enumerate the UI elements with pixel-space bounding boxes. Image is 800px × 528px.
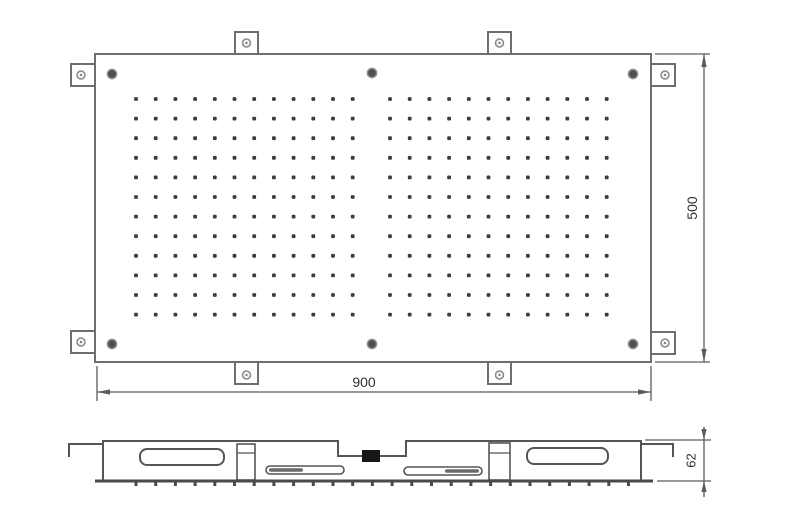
nozzle-dot (506, 234, 510, 238)
nozzle-dot (193, 117, 197, 121)
nozzle-dot (233, 254, 237, 258)
nozzle-dot (565, 215, 569, 219)
nozzle-dot (487, 97, 491, 101)
nozzle-dot (408, 156, 412, 160)
nozzle-dot (467, 195, 471, 199)
nozzle-dot (546, 254, 550, 258)
nozzle-dot (408, 117, 412, 121)
nozzle-dot (388, 313, 392, 317)
tab-screw-hole-center (80, 74, 82, 76)
nozzle-dot (408, 234, 412, 238)
nozzle-dot (526, 156, 530, 160)
corner-screw (628, 69, 637, 78)
nozzle-dot (252, 313, 256, 317)
nozzle-dot (447, 195, 451, 199)
nozzle-dot (193, 254, 197, 258)
nozzle-dot (272, 234, 276, 238)
nozzle-dot (154, 293, 158, 297)
nozzle-dot (565, 195, 569, 199)
nozzle-dot (546, 234, 550, 238)
nozzle-dot (565, 97, 569, 101)
thickness-dimension-label: 62 (684, 453, 699, 467)
nozzle-dot (331, 195, 335, 199)
nozzle-dot (331, 254, 335, 258)
nozzle-dot (174, 234, 178, 238)
arrowhead-left (97, 389, 110, 394)
tab-screw-hole-center (664, 74, 666, 76)
nozzle-dot (174, 176, 178, 180)
nozzle-dot (331, 274, 335, 278)
nozzle-dot (408, 274, 412, 278)
nozzle-dot (292, 176, 296, 180)
arrowhead-right (638, 389, 651, 394)
nozzle-dot (272, 117, 276, 121)
nozzle-dot (311, 97, 315, 101)
nozzle-dot (546, 274, 550, 278)
nozzle-dot (526, 313, 530, 317)
nozzle-dot (154, 313, 158, 317)
nozzle-dot (292, 136, 296, 140)
nozzle-dot (565, 156, 569, 160)
nozzle-dot (546, 195, 550, 199)
nozzle-dot (565, 176, 569, 180)
arrowhead-top (701, 429, 706, 440)
nozzle-dot (428, 313, 432, 317)
nozzle-dot (506, 313, 510, 317)
nozzle-dot (351, 313, 355, 317)
nozzle-dot (408, 136, 412, 140)
nozzle-dot (565, 274, 569, 278)
nozzle-dot (388, 117, 392, 121)
nozzle-dot (408, 195, 412, 199)
nozzle-dot (467, 215, 471, 219)
right-support (489, 443, 510, 480)
nozzle-dot (213, 313, 217, 317)
nozzle-dot (585, 293, 589, 297)
nozzle-dot (134, 234, 138, 238)
nozzle-dot (546, 176, 550, 180)
nozzle-dot (252, 117, 256, 121)
nozzle-dot (134, 254, 138, 258)
nozzle-dot (388, 293, 392, 297)
nozzle-dot (546, 117, 550, 121)
nozzle-dot (134, 156, 138, 160)
nozzle-dot (408, 254, 412, 258)
nozzle-dot (487, 195, 491, 199)
nozzle-dot (292, 215, 296, 219)
nozzle-dot (134, 195, 138, 199)
nozzle-dot (134, 313, 138, 317)
nozzle-dot (272, 176, 276, 180)
nozzle-dot (193, 274, 197, 278)
nozzle-dot (447, 254, 451, 258)
nozzle-dot (565, 234, 569, 238)
nozzle-dot (193, 97, 197, 101)
nozzle-dot (565, 293, 569, 297)
nozzle-dot (311, 156, 315, 160)
nozzle-dot (447, 313, 451, 317)
nozzle-dot (467, 234, 471, 238)
nozzle-dot (565, 117, 569, 121)
nozzle-dot (546, 156, 550, 160)
tab-screw-hole-center (80, 341, 82, 343)
nozzle-dot (193, 136, 197, 140)
nozzle-dot (565, 136, 569, 140)
nozzle-dot (605, 176, 609, 180)
nozzle-dot (311, 234, 315, 238)
nozzle-dot (213, 97, 217, 101)
nozzle-dot (213, 176, 217, 180)
nozzle-dot (311, 195, 315, 199)
nozzle-dot (447, 293, 451, 297)
nozzle-dot (506, 274, 510, 278)
nozzle-dot (154, 156, 158, 160)
nozzle-dot (292, 195, 296, 199)
nozzle-dot (331, 293, 335, 297)
nozzle-dot (428, 136, 432, 140)
nozzle-dot (506, 254, 510, 258)
nozzle-dot (272, 136, 276, 140)
corner-screw (628, 339, 637, 348)
nozzle-dot (487, 176, 491, 180)
nozzle-dot (605, 97, 609, 101)
nozzle-dot (526, 195, 530, 199)
nozzle-dot (447, 156, 451, 160)
nozzle-dot (585, 117, 589, 121)
tab-screw-hole-center (245, 42, 247, 44)
nozzle-dot (526, 215, 530, 219)
nozzle-dot (351, 274, 355, 278)
nozzle-dot (134, 97, 138, 101)
nozzle-dot (331, 117, 335, 121)
nozzle-dot (526, 117, 530, 121)
nozzle-dot (331, 313, 335, 317)
nozzle-dot (252, 195, 256, 199)
nozzle-dot (174, 293, 178, 297)
nozzle-dot (331, 97, 335, 101)
nozzle-dot (174, 215, 178, 219)
nozzle-dot (331, 215, 335, 219)
nozzle-dot (585, 313, 589, 317)
nozzle-dot (428, 293, 432, 297)
technical-drawing-canvas: 900 500 (0, 0, 800, 528)
nozzle-dot (565, 313, 569, 317)
nozzle-dot (506, 293, 510, 297)
nozzle-dot (428, 215, 432, 219)
nozzle-dot (154, 215, 158, 219)
nozzle-dot (447, 215, 451, 219)
nozzle-dot (506, 136, 510, 140)
nozzle-dot (272, 293, 276, 297)
nozzle-dot (193, 313, 197, 317)
left-support (237, 444, 255, 480)
nozzle-dot (233, 117, 237, 121)
nozzle-dot (605, 274, 609, 278)
nozzle-dot (351, 156, 355, 160)
left-mounting-hook (69, 444, 103, 457)
nozzle-dot (585, 215, 589, 219)
nozzle-dot (272, 156, 276, 160)
nozzle-dot (252, 254, 256, 258)
height-dimension: 500 (655, 54, 710, 362)
nozzle-dot (447, 274, 451, 278)
nozzle-dot (174, 313, 178, 317)
nozzle-dot (351, 97, 355, 101)
nozzle-dot (272, 254, 276, 258)
nozzle-dot (154, 274, 158, 278)
nozzle-dot (605, 234, 609, 238)
nozzle-dot (154, 176, 158, 180)
nozzle-dot (585, 234, 589, 238)
nozzle-dot (428, 97, 432, 101)
nozzle-dot (134, 117, 138, 121)
nozzle-dot (154, 254, 158, 258)
nozzle-dot (134, 176, 138, 180)
nozzle-dot (506, 97, 510, 101)
nozzle-dot (292, 254, 296, 258)
arrowhead-top (701, 54, 706, 67)
nozzle-dot (193, 176, 197, 180)
height-dimension-label: 500 (684, 196, 700, 220)
tab-screw-hole-center (498, 374, 500, 376)
nozzle-dot (546, 215, 550, 219)
nozzle-dot (447, 97, 451, 101)
nozzle-dot (467, 156, 471, 160)
nozzle-dot (252, 176, 256, 180)
nozzle-dot (526, 254, 530, 258)
nozzle-dot (292, 293, 296, 297)
nozzle-dot (292, 313, 296, 317)
nozzle-dot (292, 234, 296, 238)
nozzle-dot (213, 215, 217, 219)
nozzle-dot (605, 313, 609, 317)
top-view (71, 32, 675, 384)
width-dimension-label: 900 (352, 374, 376, 390)
nozzle-dot (467, 136, 471, 140)
nozzle-dot (331, 136, 335, 140)
nozzle-dot (487, 313, 491, 317)
mounting-tab-bottom (235, 362, 258, 384)
nozzle-dot (447, 136, 451, 140)
nozzle-dot (174, 274, 178, 278)
nozzle-dot (605, 215, 609, 219)
nozzle-dot (233, 215, 237, 219)
nozzle-dot (428, 117, 432, 121)
nozzle-dot (585, 254, 589, 258)
nozzle-dot (605, 293, 609, 297)
nozzle-dot (311, 176, 315, 180)
nozzle-dot (134, 215, 138, 219)
nozzle-dot (605, 195, 609, 199)
arrowhead-bottom (701, 349, 706, 362)
nozzle-dot (467, 176, 471, 180)
nozzle-dot (311, 313, 315, 317)
nozzle-dot (193, 215, 197, 219)
nozzle-dot (193, 293, 197, 297)
nozzle-dot (506, 176, 510, 180)
nozzle-dot (408, 215, 412, 219)
nozzle-dot (213, 274, 217, 278)
thickness-dimension: 62 (645, 427, 711, 497)
nozzle-dot (388, 195, 392, 199)
nozzle-dot (252, 293, 256, 297)
nozzle-dot (351, 234, 355, 238)
nozzle-dot (252, 136, 256, 140)
nozzle-dot (233, 195, 237, 199)
nozzle-dot (351, 136, 355, 140)
nozzle-dot (585, 195, 589, 199)
nozzle-dot (546, 136, 550, 140)
nozzle-dot (487, 156, 491, 160)
nozzle-dot (174, 97, 178, 101)
nozzle-dot (585, 176, 589, 180)
nozzle-dot (467, 274, 471, 278)
nozzle-dot (174, 136, 178, 140)
nozzle-dot (331, 234, 335, 238)
corner-screw (367, 339, 376, 348)
nozzle-dot (487, 136, 491, 140)
nozzle-dot (506, 195, 510, 199)
nozzle-dot (213, 156, 217, 160)
nozzle-dot (272, 313, 276, 317)
nozzle-dot (447, 234, 451, 238)
nozzle-dot (292, 274, 296, 278)
nozzle-dot (233, 313, 237, 317)
nozzle-dot (193, 195, 197, 199)
nozzle-dot (213, 195, 217, 199)
nozzle-dot (487, 293, 491, 297)
nozzle-dot (213, 293, 217, 297)
nozzle-dot (487, 254, 491, 258)
nozzle-dot (428, 156, 432, 160)
nozzle-dot (272, 195, 276, 199)
nozzle-dot (526, 97, 530, 101)
nozzle-dot (605, 156, 609, 160)
nozzle-dot (154, 234, 158, 238)
nozzle-dot (311, 136, 315, 140)
shower-head-drawing: 900 500 (0, 0, 800, 528)
nozzle-dot (351, 215, 355, 219)
nozzle-dot (252, 234, 256, 238)
nozzle-dot (233, 136, 237, 140)
nozzle-dot (351, 195, 355, 199)
nozzle-dot (154, 195, 158, 199)
nozzle-dot (351, 254, 355, 258)
mounting-tab-top (488, 32, 511, 54)
nozzle-dot (565, 254, 569, 258)
nozzle-dot (351, 117, 355, 121)
nozzle-dot (233, 176, 237, 180)
nozzle-dot (506, 156, 510, 160)
nozzle-dot (585, 156, 589, 160)
nozzle-dot (311, 274, 315, 278)
nozzle-dot (154, 97, 158, 101)
nozzle-dot (174, 117, 178, 121)
water-inlet (362, 450, 380, 462)
nozzle-dot (506, 215, 510, 219)
nozzle-dot (388, 176, 392, 180)
nozzle-dot (233, 97, 237, 101)
nozzle-dot (585, 97, 589, 101)
nozzle-dot (292, 117, 296, 121)
nozzle-dot (467, 117, 471, 121)
nozzle-dot (526, 293, 530, 297)
nozzle-dot (252, 215, 256, 219)
mounting-tab-right (651, 332, 675, 354)
nozzle-dot (292, 97, 296, 101)
nozzle-dot (506, 117, 510, 121)
nozzle-dot (388, 274, 392, 278)
nozzle-dot (213, 117, 217, 121)
nozzle-dot (487, 234, 491, 238)
nozzle-dot (193, 156, 197, 160)
nozzle-dot (388, 254, 392, 258)
nozzle-dot (585, 136, 589, 140)
nozzle-dot (134, 136, 138, 140)
nozzle-dot (408, 313, 412, 317)
nozzle-dot (154, 136, 158, 140)
nozzle-dot (585, 274, 589, 278)
corner-screw (107, 339, 116, 348)
nozzle-dot (233, 274, 237, 278)
nozzle-dot (428, 195, 432, 199)
nozzle-dot (428, 176, 432, 180)
nozzle-dot (447, 176, 451, 180)
mounting-tab-right (651, 64, 675, 86)
nozzle-dot (233, 293, 237, 297)
nozzle-dot (311, 254, 315, 258)
nozzle-dot (213, 234, 217, 238)
nozzle-dot (272, 215, 276, 219)
nozzle-dot (605, 117, 609, 121)
mounting-tab-left (71, 331, 95, 353)
nozzle-dot (193, 234, 197, 238)
corner-screw (367, 68, 376, 77)
nozzle-dot (408, 97, 412, 101)
nozzle-dot (311, 215, 315, 219)
nozzle-dot (351, 293, 355, 297)
nozzle-dot (526, 176, 530, 180)
nozzle-dot (408, 293, 412, 297)
nozzle-dot (487, 215, 491, 219)
nozzle-dot (546, 313, 550, 317)
nozzle-dot (487, 117, 491, 121)
nozzle-dot (351, 176, 355, 180)
nozzle-dot (428, 254, 432, 258)
mounting-tab-left (71, 64, 95, 86)
tab-screw-hole-center (498, 42, 500, 44)
nozzle-dot (546, 97, 550, 101)
nozzle-dot (174, 254, 178, 258)
nozzle-dot (252, 97, 256, 101)
nozzle-dot (272, 274, 276, 278)
nozzle-dot (174, 195, 178, 199)
nozzle-dot (311, 293, 315, 297)
nozzle-dot (311, 117, 315, 121)
nozzle-dot (292, 156, 296, 160)
nozzle-dot (546, 293, 550, 297)
nozzle-dot (174, 156, 178, 160)
nozzle-dot (331, 176, 335, 180)
tab-screw-hole-center (245, 374, 247, 376)
side-view (69, 441, 673, 486)
nozzle-dot (252, 274, 256, 278)
nozzle-dot (388, 234, 392, 238)
nozzle-dot (526, 274, 530, 278)
nozzle-dot (154, 117, 158, 121)
nozzle-dot (134, 293, 138, 297)
nozzle-dot (134, 274, 138, 278)
